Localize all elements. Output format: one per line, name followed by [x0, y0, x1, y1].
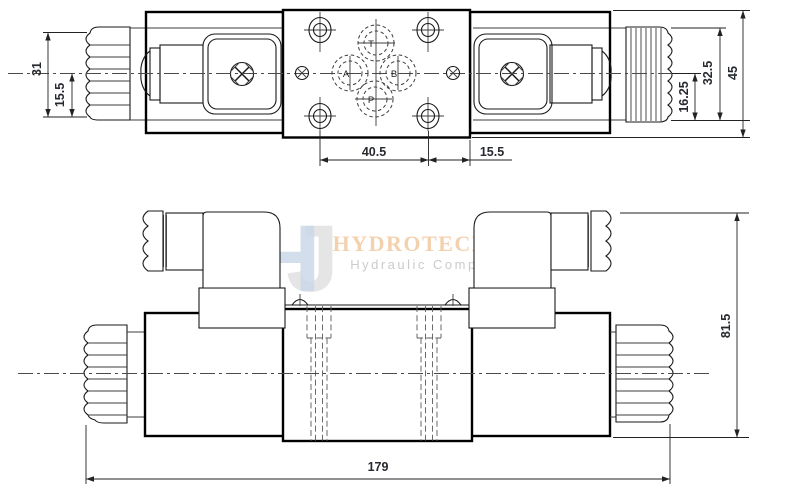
connector-base — [199, 288, 285, 328]
right-knob-top-view — [626, 27, 672, 122]
connector-base — [469, 288, 555, 328]
cable-gland — [143, 211, 163, 271]
connector-neck — [166, 213, 203, 270]
dim-total-height: 81.5 — [719, 314, 733, 338]
left-solenoid-top-view — [141, 12, 283, 133]
dim-solenoid-dia: 31 — [30, 62, 44, 76]
left-connector — [143, 211, 285, 328]
coil-end — [550, 45, 592, 103]
connector-body — [474, 212, 551, 288]
valve-body-top-view: T A B P — [8, 10, 701, 138]
port-label-t: T — [368, 39, 374, 50]
right-knob-ridges — [616, 343, 669, 415]
plate-screw — [445, 294, 461, 306]
left-dimensions: 31 15.5 — [30, 33, 87, 118]
dim-port-offset: 16.25 — [677, 81, 691, 112]
right-solenoid-top-view — [470, 12, 611, 133]
right-knob-ridges — [631, 28, 661, 121]
dim-total-length: 179 — [368, 460, 389, 474]
connector-neck — [551, 213, 588, 270]
left-solenoid-side-view — [145, 313, 287, 436]
drawing-page: J H HYDROTECHNIK24 Hydraulic Components — [0, 0, 800, 494]
right-solenoid-side-view — [470, 313, 610, 436]
armature-bracket — [150, 48, 160, 100]
dim-solenoid-radius: 15.5 — [53, 83, 67, 107]
dim-hole-offset: 15.5 — [480, 145, 504, 159]
left-knob-ridges — [90, 45, 130, 105]
left-knob-side-view — [84, 325, 127, 423]
port-label-a: A — [343, 69, 350, 80]
left-tube-lines — [127, 332, 146, 417]
dim-hole-span: 40.5 — [362, 145, 386, 159]
armature-bracket — [592, 48, 602, 100]
port-label-b: B — [391, 69, 397, 80]
dim-body-height: 45 — [726, 66, 740, 80]
port-label-p: P — [368, 95, 374, 106]
connector-body — [203, 212, 280, 288]
technical-drawing: J H HYDROTECHNIK24 Hydraulic Components — [0, 0, 800, 494]
top-view: T A B P — [8, 10, 750, 166]
right-connector — [469, 211, 611, 328]
cable-gland — [591, 211, 611, 271]
coil-end — [160, 45, 203, 103]
dim-knob-height: 32.5 — [701, 61, 715, 85]
left-knob-ridges — [88, 343, 127, 415]
